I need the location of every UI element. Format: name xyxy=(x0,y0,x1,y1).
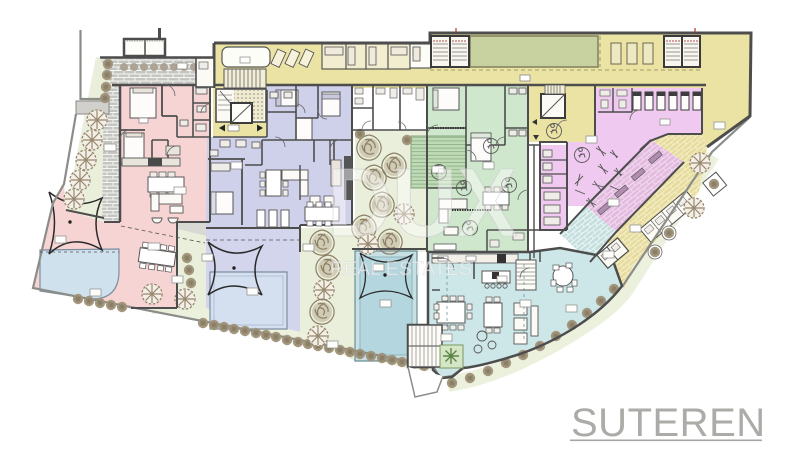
svg-text:REAL ESTATES: REAL ESTATES xyxy=(330,259,472,280)
svg-text:DUX: DUX xyxy=(327,148,517,257)
svg-text:SUTEREN: SUTEREN xyxy=(571,401,766,445)
